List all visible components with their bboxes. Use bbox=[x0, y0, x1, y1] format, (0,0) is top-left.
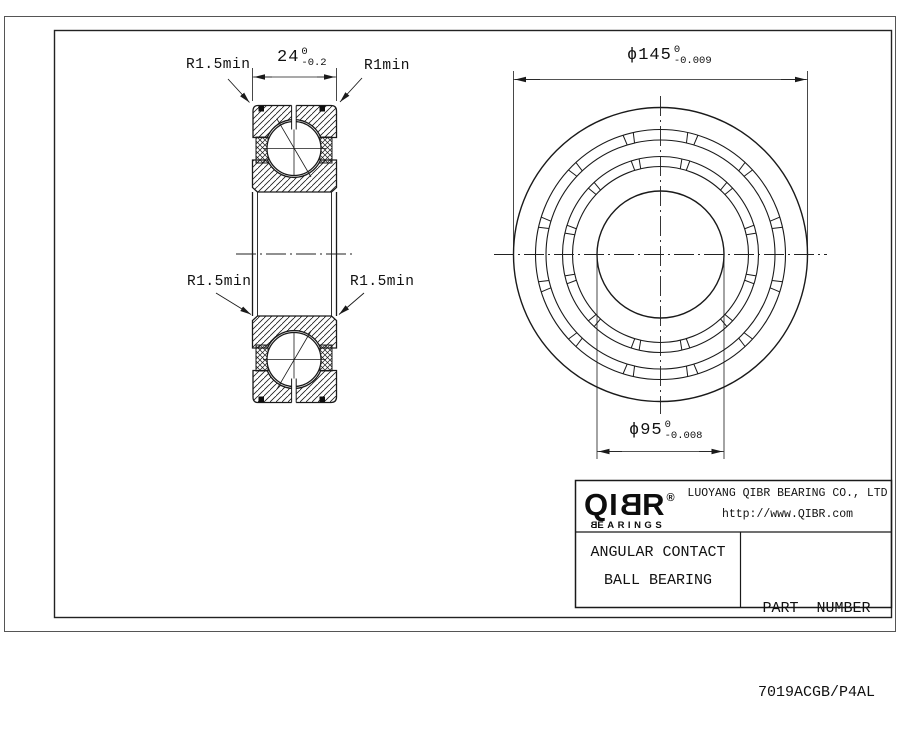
product-type-line1: ANGULAR CONTACT bbox=[576, 539, 740, 567]
radius-label-top-left: R1.5min bbox=[186, 57, 250, 73]
width-dimension-lines bbox=[253, 68, 337, 101]
bore-dimension-text: ϕ95 0 -0.008 bbox=[629, 420, 702, 441]
company-url: http://www.QIBR.com bbox=[683, 504, 892, 525]
radius-label-bottom-left: R1.5min bbox=[187, 274, 251, 290]
drawing-sheet: { "section_view": { "width_dim": { "pref… bbox=[0, 0, 900, 636]
product-type-line2: BALL BEARING bbox=[576, 567, 740, 595]
part-number-value: 7019ACGB/P4AL bbox=[741, 679, 892, 707]
od-dim-value: ϕ145 bbox=[627, 46, 672, 65]
product-type-cell: ANGULAR CONTACT BALL BEARING bbox=[576, 539, 740, 595]
width-dimension-text: 24 0 -0.2 bbox=[277, 47, 327, 68]
qibr-logo: QIBR® BEARINGS bbox=[584, 483, 676, 531]
front-view-centerlines bbox=[494, 96, 827, 414]
section-view bbox=[216, 68, 364, 405]
company-name: LUOYANG QIBR BEARING CO., LTD bbox=[683, 483, 892, 504]
part-number-label: PART NUMBER bbox=[741, 595, 892, 623]
registered-mark: ® bbox=[667, 492, 676, 504]
bore-dim-value: ϕ95 bbox=[629, 421, 663, 440]
radius-label-bottom-right: R1.5min bbox=[350, 274, 414, 290]
qibr-logo-wordmark: QIBR® bbox=[584, 483, 676, 520]
width-dim-tolerance: 0 -0.2 bbox=[301, 47, 326, 68]
bore-dim-tolerance: 0 -0.008 bbox=[665, 420, 703, 441]
bore-lines bbox=[253, 192, 337, 316]
front-view bbox=[494, 71, 827, 459]
company-info: LUOYANG QIBR BEARING CO., LTD http://www… bbox=[683, 483, 892, 525]
od-dim-tolerance: 0 -0.009 bbox=[674, 45, 712, 66]
part-number-cell: PART NUMBER 7019ACGB/P4AL bbox=[741, 539, 892, 735]
od-dimension-text: ϕ145 0 -0.009 bbox=[627, 45, 712, 66]
radius-label-top-right: R1min bbox=[364, 58, 410, 74]
width-dim-value: 24 bbox=[277, 48, 299, 67]
